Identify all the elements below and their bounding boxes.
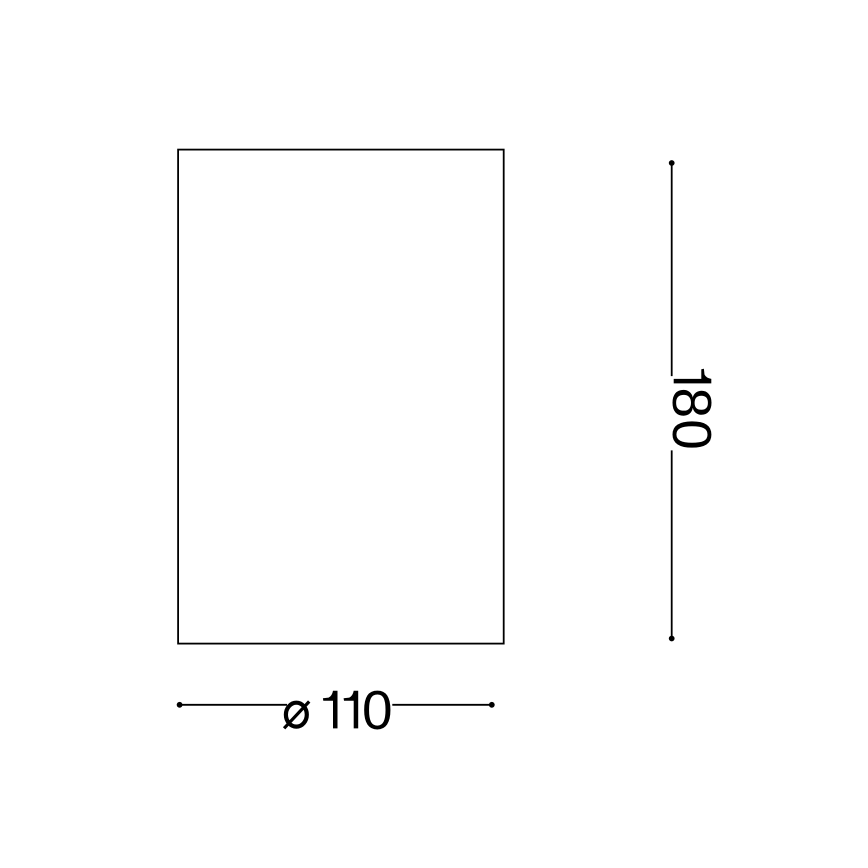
svg-text:0: 0	[661, 419, 723, 450]
svg-text:8: 8	[661, 388, 723, 419]
svg-text:0: 0	[362, 679, 393, 741]
